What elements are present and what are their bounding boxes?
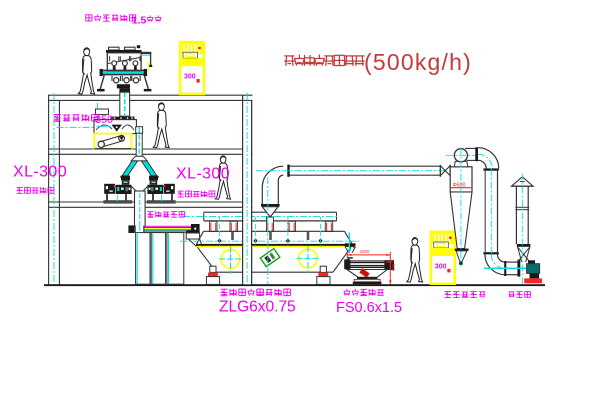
- svg-text:FS0.6x1.5: FS0.6x1.5: [336, 300, 402, 316]
- svg-text:XL-300: XL-300: [176, 165, 230, 182]
- svg-text:XL-300: XL-300: [13, 163, 67, 180]
- svg-text:300: 300: [435, 263, 447, 270]
- svg-text:1.5: 1.5: [132, 14, 147, 26]
- svg-text:300: 300: [184, 74, 196, 81]
- svg-text:1500: 1500: [360, 249, 370, 254]
- svg-text:Φ600: Φ600: [453, 182, 466, 188]
- svg-text:(500kg/h): (500kg/h): [364, 49, 472, 75]
- svg-text:945: 945: [391, 264, 396, 272]
- svg-text:ZLG6x0.75: ZLG6x0.75: [219, 299, 296, 316]
- svg-text:350: 350: [95, 114, 113, 126]
